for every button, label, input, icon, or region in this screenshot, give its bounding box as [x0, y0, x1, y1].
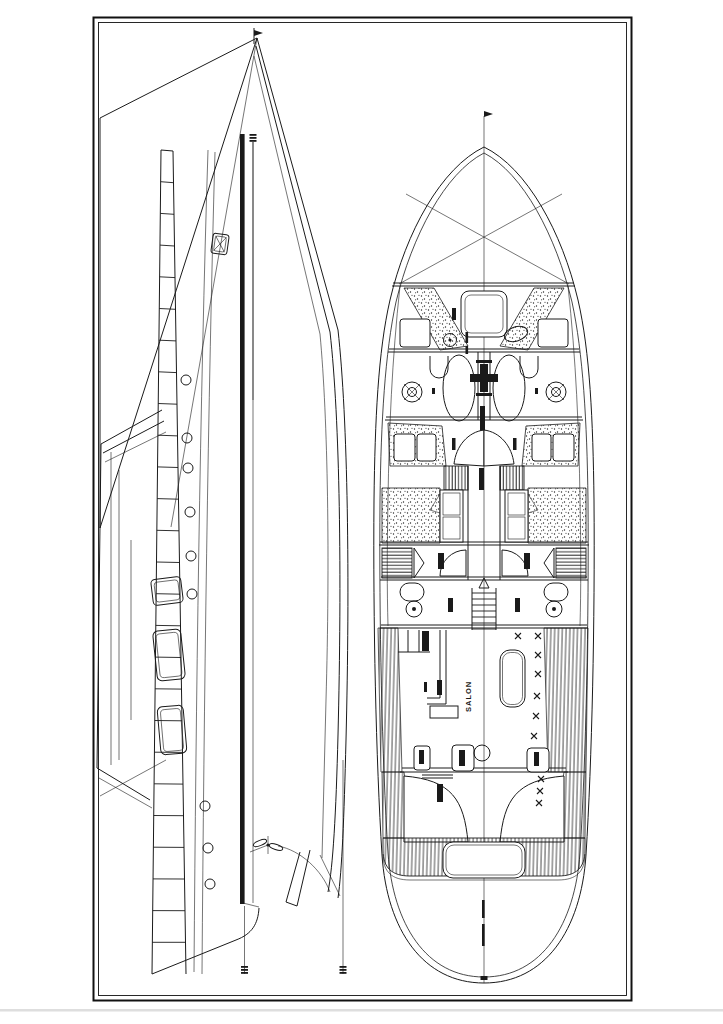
grating — [500, 466, 524, 490]
ladder-rung — [161, 182, 174, 183]
rudder-line — [297, 850, 310, 906]
micro-label-mark — [466, 346, 469, 354]
seat-cushion-mark — [419, 750, 424, 764]
deckhouse-top-line — [97, 444, 101, 768]
masthead-flag-icon — [484, 111, 493, 117]
porthole — [187, 589, 197, 599]
hull-bottom-inner-line — [256, 46, 340, 892]
appliance — [424, 682, 427, 692]
lazarette-hatch — [443, 842, 525, 878]
transom-line — [152, 908, 259, 974]
micro-label-mark — [432, 388, 435, 394]
x-mark — [535, 652, 541, 658]
door-swing — [544, 548, 554, 578]
door-leaf — [454, 430, 484, 466]
ladder-rung — [156, 594, 180, 595]
toilet-icon-dot — [552, 607, 556, 611]
x-mark — [535, 633, 541, 639]
ladder-rung — [158, 435, 178, 436]
bulkhead-line — [392, 283, 575, 286]
seat-cushion-mark — [437, 784, 443, 802]
ladder-rung — [159, 340, 176, 341]
page-shadow — [0, 1009, 723, 1012]
door-swing — [414, 548, 424, 578]
ladder-rung — [160, 277, 175, 278]
locker-door — [394, 434, 415, 461]
door-post — [452, 438, 456, 450]
midship-lobby — [388, 423, 580, 490]
locker-door — [553, 434, 574, 461]
waterline-band — [240, 134, 245, 904]
rudder-line — [286, 852, 300, 902]
porthole — [200, 801, 210, 811]
aft-deck — [383, 838, 585, 880]
bow-flag-icon — [254, 30, 263, 36]
cabinet — [556, 548, 586, 578]
micro-label-mark — [466, 332, 469, 343]
ladder-rung — [157, 499, 178, 500]
counter-line — [243, 903, 259, 907]
porthole — [181, 375, 191, 385]
cabin-floor — [382, 488, 440, 543]
seat-cushion-mark — [534, 752, 539, 766]
ladder-rung — [158, 467, 179, 468]
door-post — [452, 308, 456, 320]
stern-detail — [152, 836, 340, 974]
sheet-frame — [0, 18, 723, 1012]
toilet-icon-dot — [448, 338, 451, 341]
berth-pillow — [400, 319, 430, 347]
cabin-floor — [528, 488, 586, 543]
aft-brace-line — [100, 760, 166, 796]
micro-label-mark — [482, 924, 485, 946]
deck-fastening-marks — [515, 633, 541, 739]
sink-icon — [544, 583, 568, 601]
ladder-rung — [160, 213, 174, 214]
helm-wheel-icon — [474, 745, 490, 761]
micro-label-mark — [535, 388, 538, 394]
bow-hatch — [461, 291, 507, 337]
x-mark — [515, 633, 521, 639]
dimension-tick — [250, 140, 257, 142]
ladder-rung — [159, 309, 175, 310]
dimension-ticks — [241, 134, 347, 974]
cabinet — [382, 548, 412, 578]
x-mark — [533, 713, 539, 719]
forward-heads — [402, 352, 566, 436]
hull-bottom-line — [257, 38, 348, 898]
galley-unit — [430, 706, 458, 718]
rudder-bottom-line — [286, 902, 297, 906]
sink-icon — [400, 583, 424, 601]
cap-rail-line — [194, 150, 208, 972]
porthole — [185, 507, 195, 517]
profile-view — [97, 28, 348, 974]
salon-label: SALON — [464, 681, 473, 712]
fixture — [448, 598, 453, 612]
guest-bed — [505, 490, 528, 542]
galley-counter — [427, 630, 446, 704]
x-mark — [531, 733, 537, 739]
door-leaf — [493, 355, 525, 421]
skeg-line — [320, 855, 340, 896]
dimension-tick — [250, 137, 257, 139]
cockpit-bench — [500, 776, 564, 842]
yacht-drawing: SALON — [0, 0, 723, 1024]
ladder-rung — [160, 245, 175, 246]
ladder-rung — [157, 562, 180, 563]
locker-door — [417, 434, 436, 461]
sink-icon — [520, 356, 538, 378]
hull-fairing-line — [254, 56, 328, 858]
fixture — [515, 598, 520, 612]
door-leaf — [484, 430, 514, 466]
seat-cushion-mark — [459, 750, 465, 766]
winch-icon — [546, 382, 566, 402]
dimension-tick — [250, 134, 257, 136]
helm-seats — [414, 745, 549, 778]
deckhouse-aft-line — [99, 778, 152, 808]
deck-hatch-icon — [211, 233, 230, 255]
door-post — [524, 553, 530, 569]
porthole — [186, 551, 196, 561]
ladder-rungs — [152, 182, 185, 943]
door-post — [513, 438, 517, 450]
side-deck-planking — [378, 628, 402, 772]
ladder-rung — [157, 530, 179, 531]
window-inner — [160, 708, 184, 752]
bow-rigging-triangle — [100, 38, 257, 528]
side-table-line — [422, 775, 453, 778]
guest-bed — [440, 490, 463, 542]
salon: SALON — [378, 628, 588, 778]
galley — [398, 630, 458, 718]
micro-label-mark — [482, 900, 485, 918]
ladder-top — [161, 150, 173, 151]
deck-plan-view: SALON — [374, 111, 594, 983]
window-inner — [154, 580, 180, 603]
grating — [444, 466, 468, 490]
appliance — [437, 680, 442, 695]
salon-table-inner — [503, 653, 523, 705]
propeller-icon — [250, 836, 283, 854]
porthole — [183, 463, 193, 473]
salon-table — [500, 650, 525, 707]
door-post — [438, 553, 444, 569]
toilet-icon-dot — [412, 607, 416, 611]
centerline-door-bar — [479, 468, 484, 490]
side-deck-planking — [544, 628, 588, 772]
sink-icon — [430, 356, 448, 378]
berth-pillow — [538, 319, 568, 347]
x-mark — [535, 671, 541, 677]
drawing-sheet: SALON — [0, 0, 723, 1024]
appliance — [422, 631, 429, 651]
ladder-rung — [158, 404, 177, 405]
door-leaf — [443, 355, 475, 421]
porthole — [203, 843, 213, 853]
locker-door — [532, 434, 551, 461]
x-mark — [534, 693, 540, 699]
ladder-rung — [159, 372, 177, 373]
cockpit-bench — [404, 776, 468, 842]
winch-icon — [402, 382, 422, 402]
window-inner — [156, 632, 182, 678]
portholes — [181, 375, 215, 889]
porthole — [205, 879, 215, 889]
mast-foot-icon — [470, 360, 498, 396]
